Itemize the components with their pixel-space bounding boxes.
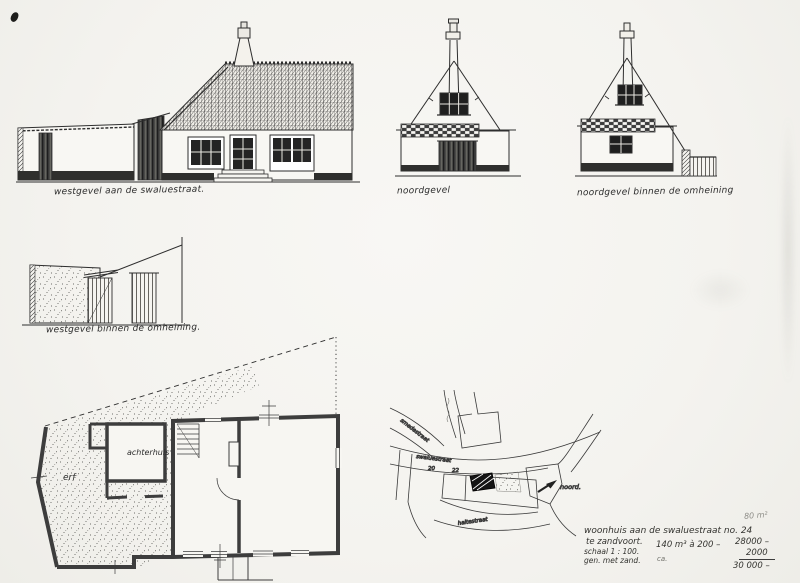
annex-wall — [18, 124, 134, 180]
shed-door-right — [129, 273, 159, 323]
window-left — [188, 137, 224, 169]
house-no-20: 20 — [428, 466, 435, 472]
house-outer-wall — [173, 416, 338, 557]
gable-window — [615, 85, 644, 105]
floor-plan-drawing: achterhuis erf — [15, 328, 350, 574]
elevation-c — [575, 23, 717, 176]
sheet-place: te zandvoort. — [586, 537, 643, 547]
gable-window — [437, 93, 471, 115]
calc-total: 30 000 – — [733, 561, 770, 571]
elevation-north-label: noordgevel — [397, 186, 450, 197]
block-top-center — [458, 392, 501, 448]
right-island — [526, 414, 601, 536]
elevation-west-street-label: westgevel aan de swaluestraat. — [54, 185, 205, 198]
fence-gate — [690, 157, 716, 176]
sheet-title: woonhuis aan de swaluestraat no. 24 — [584, 526, 752, 536]
shed-door-left — [84, 270, 118, 323]
right-wall-window — [334, 448, 342, 468]
lane-label-scribble — [447, 398, 449, 422]
plinth-left — [162, 173, 214, 180]
plinth-left — [401, 165, 439, 171]
calc-sum-1: 28000 – — [735, 537, 769, 547]
achterhuis-label: achterhuis — [127, 448, 169, 457]
drawing-sheet: westgevel aan de swaluestraat. — [0, 0, 800, 583]
tile-band — [581, 119, 655, 132]
tiled-roof — [160, 64, 353, 130]
chimney — [234, 22, 254, 66]
floor-plan: achterhuis erf — [31, 337, 342, 580]
plinth-right — [476, 165, 509, 171]
door-steps — [214, 170, 272, 182]
area-note: 80 m² — [744, 510, 768, 521]
street-haltestraat-lines — [434, 500, 550, 530]
calc-approx: ca. — [657, 555, 667, 563]
haltestraat-label: haltestraat — [457, 517, 488, 527]
sheet-scale: schaal 1 : 100. — [584, 547, 639, 556]
site-map: smedestraat swaluestraat 20 22 haltestra… — [390, 390, 601, 538]
plinth-right — [314, 173, 352, 180]
sheet-note: gen. met zand. — [584, 556, 641, 565]
left-top-window — [205, 416, 221, 424]
calc-volume: 140 m³ à 200 – — [656, 540, 720, 550]
elevation-north-inside-label: noordgevel binnen de omheining — [577, 186, 734, 199]
main-house — [160, 22, 353, 182]
plinth — [581, 163, 673, 171]
body-window — [610, 136, 632, 153]
north-label: noord. — [560, 483, 581, 491]
subject-yard-stipple — [495, 472, 521, 492]
erf-label: erf — [63, 473, 77, 483]
subject-house — [470, 473, 495, 491]
porch — [218, 557, 273, 580]
site-map-drawing: smedestraat swaluestraat 20 22 haltestra… — [388, 388, 603, 540]
elevation-a — [16, 22, 360, 182]
window-right — [270, 135, 314, 171]
elevation-b — [395, 19, 521, 176]
plank-door — [437, 141, 478, 171]
elevation-north-inside-drawing — [573, 14, 721, 186]
scan-smudge-right — [780, 110, 796, 390]
lane-vertical — [444, 390, 465, 438]
elevation-west-inside-drawing — [20, 231, 195, 333]
north-arrow — [538, 480, 557, 492]
swaluestraat-label: swaluestraat — [416, 454, 453, 464]
scan-smudge-mid — [690, 270, 750, 310]
chimney-niche — [229, 442, 239, 466]
tile-band — [401, 124, 479, 137]
elevation-west-street-drawing — [12, 10, 367, 192]
house-no-22: 22 — [452, 468, 459, 474]
calc-sum-2: 2000 — [739, 548, 775, 558]
left-block-lines — [396, 450, 426, 538]
elevation-d — [22, 237, 190, 325]
elevation-north-drawing — [393, 14, 525, 186]
fence-post — [682, 150, 690, 176]
calc-sum-2-value: 2000 — [739, 548, 775, 560]
